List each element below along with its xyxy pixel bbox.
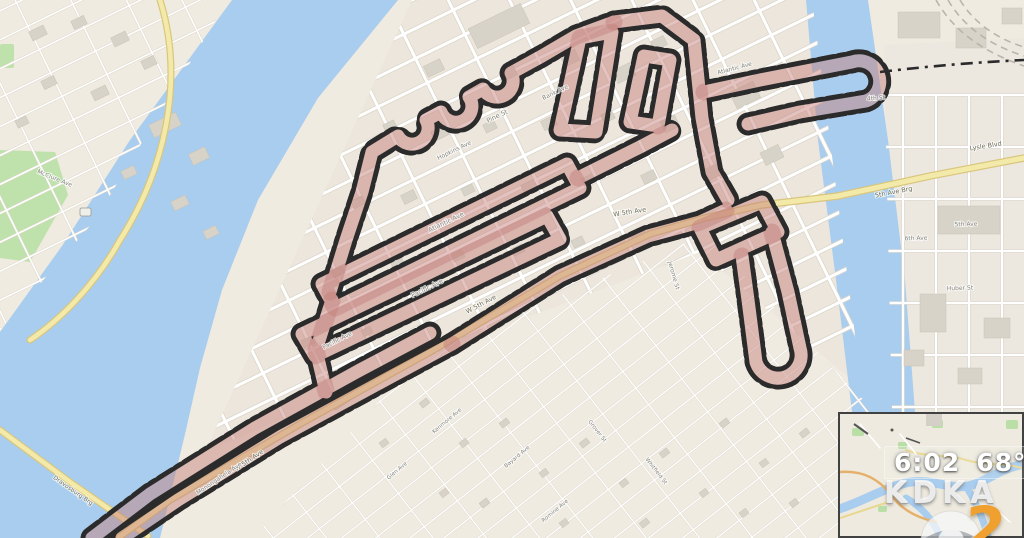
- route-shield-icon: [80, 208, 91, 216]
- street-label: 4th St: [867, 94, 886, 102]
- channel-number: 2: [966, 499, 1006, 538]
- street-label: Huber St: [947, 285, 974, 293]
- temperature-label: 68°: [976, 448, 1024, 477]
- inset-building: [926, 414, 942, 426]
- tv-map-screenshot: Pine St Hopkins Ave Atlantic Ave Pacific…: [0, 0, 1024, 538]
- time-temp-panel: 6:02 68°: [884, 446, 1024, 479]
- time-label: 6:02: [894, 448, 960, 477]
- street-label: 5th Ave: [954, 221, 977, 229]
- street-label: 6th Ave: [904, 235, 927, 243]
